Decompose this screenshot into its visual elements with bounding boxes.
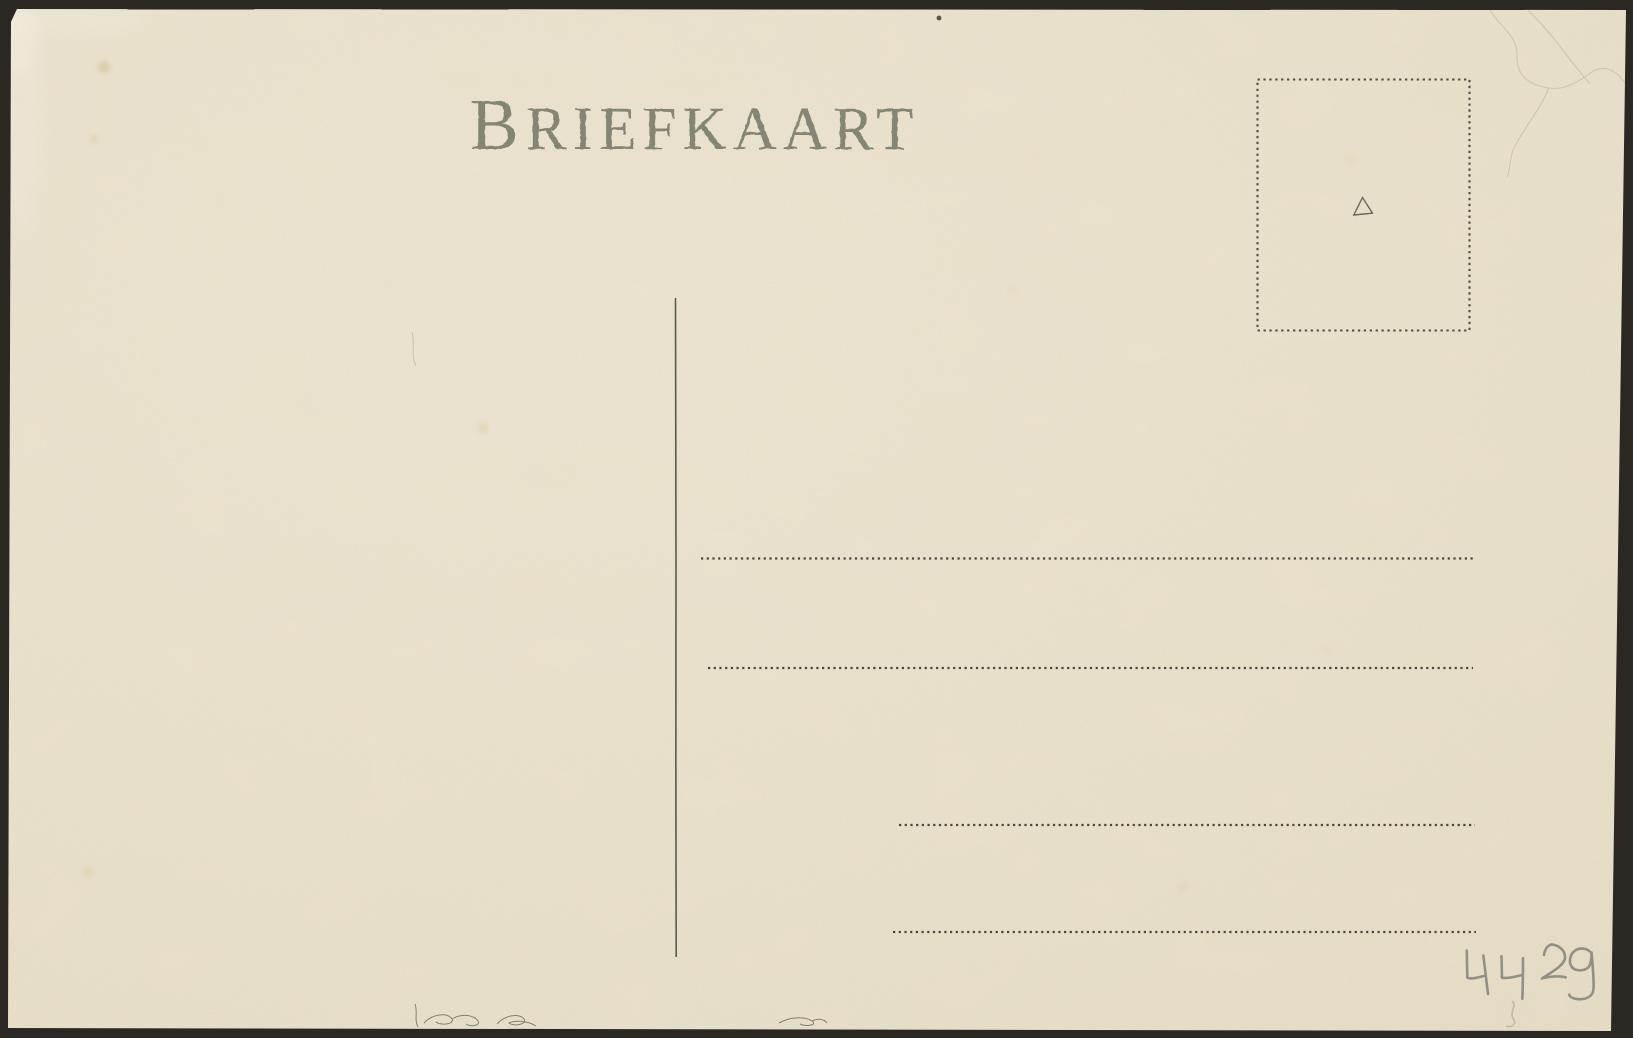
- svg-text:B: B: [470, 84, 519, 165]
- svg-text:RIEFKAART: RIEFKAART: [526, 96, 920, 163]
